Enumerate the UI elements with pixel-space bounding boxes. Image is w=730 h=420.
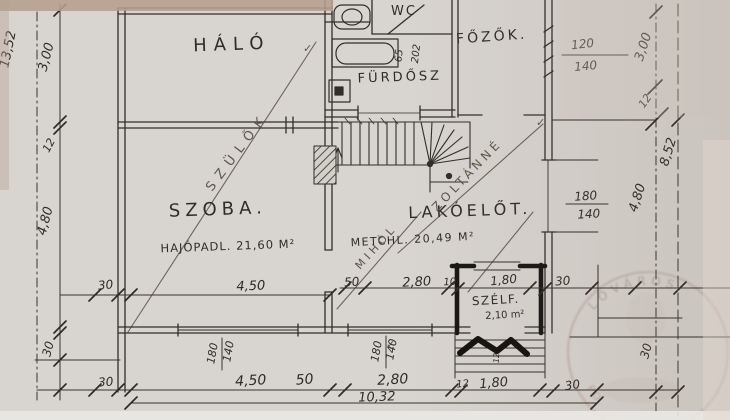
dim-bottom-g: 30 (564, 377, 581, 393)
dim-szoba-offset: 30 (97, 277, 114, 293)
dim-bottom-total: 10,32 (358, 389, 396, 405)
dim-szoba-width: 4,50 (236, 279, 265, 295)
win-kitchen-width: 120 (570, 36, 595, 52)
dim-bath-door: 65 (393, 49, 405, 63)
room-label-halo: HÁLÓ (193, 32, 271, 57)
dim-bottom-d: 2,80 (377, 371, 409, 389)
dim-steps: 12 (492, 353, 501, 363)
room-area-szelf: 2,10 m² (485, 309, 525, 322)
dim-bottom-e: 12 (456, 378, 470, 390)
win-kitchen-height: 140 (574, 58, 598, 74)
check-mark-1: ✓ (303, 42, 312, 55)
check-mark-2: ✓ (536, 116, 545, 129)
win-right-height: 140 (577, 206, 601, 221)
room-label-wc: WC (391, 4, 417, 19)
dim-interior-e: 30 (555, 273, 572, 288)
room-label-szoba: SZOBA. (168, 197, 267, 221)
dim-bottom-c: 50 (295, 371, 314, 388)
dim-interior-b: 2,80 (402, 274, 432, 290)
dim-bottom-b: 4,50 (235, 372, 267, 390)
dim-interior-a: 50 (344, 274, 361, 289)
paper-background (0, 0, 730, 420)
boiler-dot-icon (335, 87, 343, 95)
floor-plan-scan: LŐVÁROS PO (0, 0, 730, 420)
dim-bottom-f: 1,80 (479, 375, 509, 392)
hatched-wall-pier (314, 146, 336, 184)
dim-interior-d: 1,80 (490, 272, 518, 289)
room-label-szelf: SZÉLF. (471, 291, 520, 308)
dim-bath-height: 202 (410, 44, 423, 64)
dim-interior-c: 10 (443, 277, 456, 289)
win-right-width: 180 (574, 188, 598, 204)
dim-bottom-a: 30 (98, 374, 115, 389)
